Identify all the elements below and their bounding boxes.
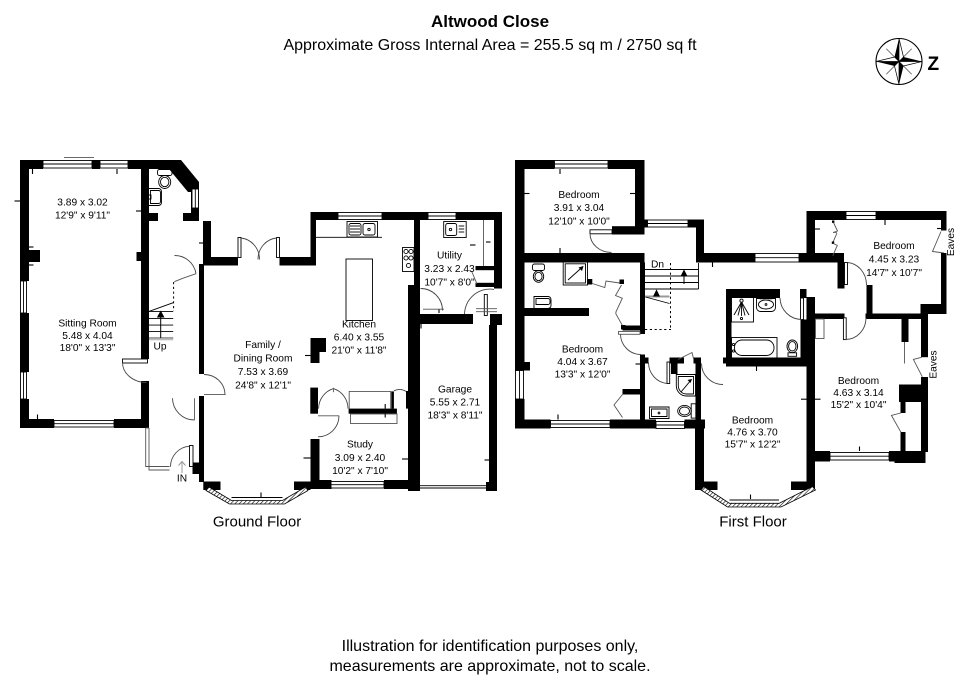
svg-text:6.40 x 3.55: 6.40 x 3.55 [334,333,385,344]
svg-text:Ground Floor: Ground Floor [213,514,301,531]
svg-text:7.53 x 3.69: 7.53 x 3.69 [238,367,289,378]
svg-text:3.23 x 2.43: 3.23 x 2.43 [424,264,475,275]
svg-text:Utility: Utility [437,251,463,262]
svg-text:10'7" x 8'0": 10'7" x 8'0" [424,278,475,289]
svg-text:Z: Z [928,54,940,75]
svg-text:Bedroom: Bedroom [558,190,599,201]
svg-text:3.09 x 2.40: 3.09 x 2.40 [335,453,386,464]
svg-text:14'7" x 10'7": 14'7" x 10'7" [866,268,922,279]
svg-text:IN: IN [177,474,187,485]
svg-text:12'10" x 10'0": 12'10" x 10'0" [548,217,610,228]
svg-text:13'3" x 12'0": 13'3" x 12'0" [555,370,611,381]
svg-text:measurements are approximate,: measurements are approximate, not to sca… [329,658,650,675]
svg-text:21'0" x 11'8": 21'0" x 11'8" [331,346,386,357]
svg-text:15'2" x 10'4": 15'2" x 10'4" [831,400,887,411]
svg-text:First Floor: First Floor [719,514,787,531]
svg-text:Bedroom: Bedroom [732,416,773,427]
svg-text:Family /: Family / [245,340,281,351]
svg-text:Bedroom: Bedroom [873,241,914,252]
svg-text:Altwood Close: Altwood Close [431,12,549,31]
svg-text:Study: Study [347,440,374,451]
svg-text:18'3" x 8'11": 18'3" x 8'11" [427,411,482,422]
svg-text:3.89 x 3.02: 3.89 x 3.02 [57,198,108,209]
svg-text:Up: Up [153,342,166,353]
svg-text:18'0" x 13'3": 18'0" x 13'3" [60,343,116,354]
svg-text:Approximate Gross Internal Are: Approximate Gross Internal Area = 255.5 … [283,37,697,54]
svg-text:15'7" x 12'2": 15'7" x 12'2" [725,440,781,451]
svg-text:Bedroom: Bedroom [838,376,879,387]
svg-text:Dn: Dn [651,260,664,271]
svg-text:5.48 x 4.04: 5.48 x 4.04 [62,331,113,342]
svg-text:4.45 x 3.23: 4.45 x 3.23 [869,255,920,266]
svg-text:Eaves: Eaves [946,228,957,256]
svg-text:4.04 x 3.67: 4.04 x 3.67 [557,357,608,368]
svg-text:5.55 x 2.71: 5.55 x 2.71 [430,398,481,409]
svg-text:24'8" x 12'1": 24'8" x 12'1" [235,381,291,392]
svg-text:12'9" x 9'11": 12'9" x 9'11" [55,211,110,222]
svg-text:Kitchen: Kitchen [342,320,376,331]
svg-text:10'2" x 7'10": 10'2" x 7'10" [332,466,388,477]
svg-text:4.76 x 3.70: 4.76 x 3.70 [727,428,778,439]
svg-text:Illustration for identificatio: Illustration for identification purposes… [342,638,639,655]
svg-text:Dining Room: Dining Room [234,354,293,365]
svg-text:Bedroom: Bedroom [562,345,603,356]
svg-text:4.63 x 3.14: 4.63 x 3.14 [833,388,884,399]
svg-text:Sitting Room: Sitting Room [58,319,116,330]
svg-text:Eaves: Eaves [929,350,940,378]
svg-text:Garage: Garage [438,385,472,396]
svg-text:3.91 x 3.04: 3.91 x 3.04 [554,203,605,214]
